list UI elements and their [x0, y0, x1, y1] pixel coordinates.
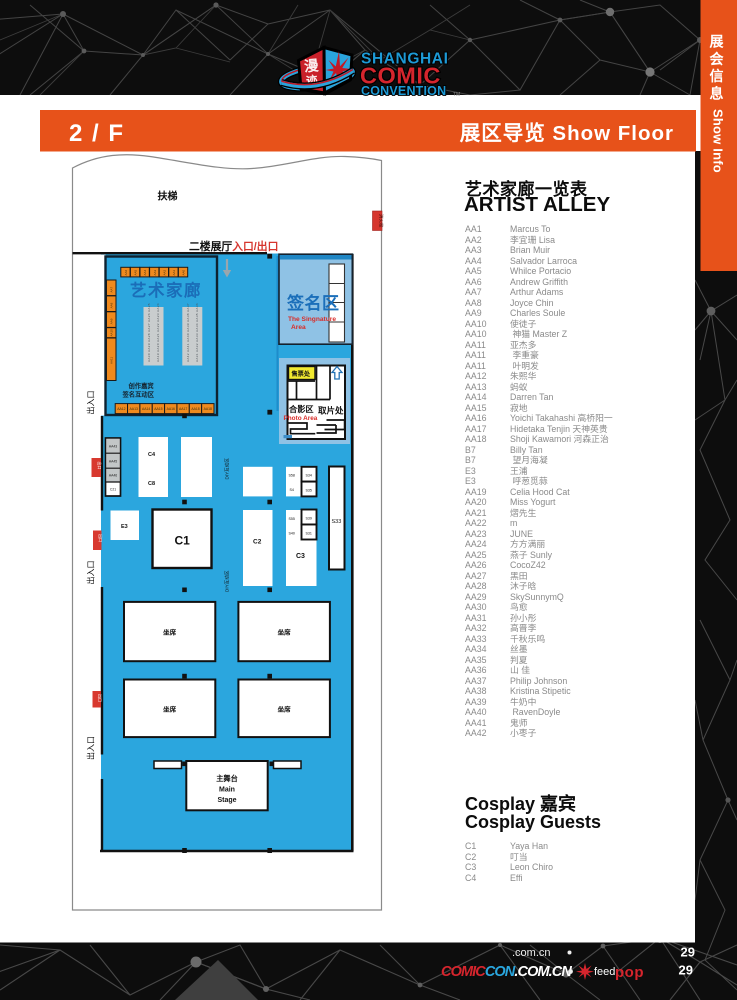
- svg-text:AA15: AA15: [154, 407, 162, 411]
- svg-text:取片处: 取片处: [318, 406, 344, 416]
- svg-text:C8: C8: [148, 481, 155, 487]
- svg-text:出口: 出口: [98, 694, 104, 702]
- svg-text:签名互动区: 签名互动区: [122, 390, 155, 399]
- svg-text:Show Info: Show Info: [711, 109, 726, 173]
- svg-text:29: 29: [681, 945, 695, 960]
- svg-text:售票处: 售票处: [292, 370, 311, 378]
- svg-text:出入口: 出入口: [86, 561, 96, 585]
- svg-text:S4: S4: [290, 488, 294, 492]
- svg-text:AA17: AA17: [179, 407, 187, 411]
- svg-text:息: 息: [710, 85, 724, 101]
- svg-text:AA10: AA10: [110, 329, 114, 337]
- svg-text:消火栓: 消火栓: [378, 214, 385, 228]
- svg-text:TM: TM: [453, 92, 460, 98]
- svg-text:S35: S35: [306, 488, 312, 492]
- svg-text:展: 展: [710, 34, 724, 50]
- svg-text:S39: S39: [306, 517, 312, 521]
- svg-text:AA9: AA9: [110, 318, 114, 324]
- svg-text:坐席: 坐席: [163, 705, 177, 714]
- svg-text:.com.cn: .com.cn: [512, 947, 551, 959]
- svg-text:AA30 AA29 AA28 AA27 AA26 AA25: AA30 AA29 AA28 AA27 AA26 AA25: [147, 303, 151, 362]
- svg-text:AA13: AA13: [130, 407, 138, 411]
- svg-text:合影区: 合影区: [288, 404, 314, 414]
- svg-text:The Singnature: The Singnature: [288, 316, 336, 323]
- svg-text:S33: S33: [332, 519, 342, 525]
- svg-text:AA5: AA5: [134, 269, 138, 275]
- svg-text:AA7: AA7: [110, 286, 114, 292]
- svg-text:AA4: AA4: [143, 269, 147, 275]
- svg-text:艺术家廊: 艺术家廊: [130, 280, 202, 300]
- svg-text:S55: S55: [289, 517, 295, 521]
- svg-text:DIY互动区: DIY互动区: [224, 570, 231, 592]
- svg-text:漫: 漫: [303, 57, 319, 75]
- svg-text:二楼展厅入口/出口: 二楼展厅入口/出口: [189, 239, 278, 253]
- svg-text:AA18: AA18: [204, 407, 212, 411]
- svg-text:Photo Area: Photo Area: [284, 415, 318, 422]
- svg-text:AA1: AA1: [172, 269, 176, 275]
- svg-text:出口: 出口: [97, 462, 103, 470]
- svg-text:展区导览 Show Floor: 展区导览 Show Floor: [460, 121, 674, 145]
- svg-text:S31: S31: [306, 531, 312, 535]
- svg-text:创作嘉宾: 创作嘉宾: [128, 381, 155, 390]
- svg-text:AA18: AA18: [191, 407, 199, 411]
- svg-text:坐席: 坐席: [278, 705, 292, 714]
- svg-text:坐席: 坐席: [278, 628, 292, 637]
- svg-text:C21: C21: [110, 488, 116, 492]
- svg-text:坐席: 坐席: [163, 628, 177, 637]
- svg-text:AA45: AA45: [109, 459, 117, 463]
- svg-text:AA14: AA14: [142, 407, 150, 411]
- svg-text:Area: Area: [291, 324, 306, 331]
- svg-text:AA2: AA2: [162, 269, 166, 275]
- svg-text:AA46: AA46: [109, 474, 117, 478]
- svg-text:C2: C2: [253, 539, 262, 546]
- svg-text:AA11: AA11: [110, 357, 114, 364]
- svg-text:pop: pop: [615, 964, 644, 981]
- svg-text:AA8: AA8: [110, 302, 114, 308]
- svg-text:AA3: AA3: [153, 269, 157, 275]
- svg-text:AA43: AA43: [109, 445, 117, 449]
- svg-text:信: 信: [710, 68, 724, 84]
- svg-text:签名区: 签名区: [286, 293, 340, 313]
- svg-text:Stage: Stage: [217, 797, 236, 804]
- svg-text:AA16: AA16: [167, 407, 175, 411]
- svg-text:AA0: AA0: [182, 269, 186, 275]
- svg-text:AA19 AA20 AA21 AA22 AA23 AA24: AA19 AA20 AA21 AA22 AA23 AA24: [156, 303, 160, 362]
- svg-text:AA31 AA32 AA33 AA34 AA35 AA36: AA31 AA32 AA33 AA34 AA35 AA36: [195, 303, 199, 362]
- svg-text:C3: C3: [296, 553, 305, 560]
- svg-text:AA12: AA12: [117, 407, 125, 411]
- svg-text:C1: C1: [175, 534, 191, 548]
- svg-text:AA6: AA6: [124, 269, 128, 275]
- svg-text:出入口: 出入口: [86, 391, 96, 415]
- svg-text:29: 29: [679, 963, 693, 978]
- svg-text:AA42 AA41 AA40 AA39 AA38 AA37: AA42 AA41 AA40 AA39 AA38 AA37: [186, 303, 190, 362]
- svg-text:Main: Main: [219, 787, 235, 794]
- svg-text:E3: E3: [121, 524, 128, 530]
- svg-text:C4: C4: [148, 452, 156, 458]
- svg-text:S58: S58: [289, 474, 295, 478]
- svg-text:DIY互动区: DIY互动区: [224, 458, 231, 480]
- svg-text:COMICCON.COM.CN: COMICCON.COM.CN: [441, 964, 572, 980]
- svg-text:feed: feed: [594, 966, 615, 978]
- svg-text:出口: 出口: [98, 534, 104, 542]
- svg-text:CONVENTION: CONVENTION: [361, 84, 446, 98]
- svg-text:S40: S40: [289, 532, 295, 536]
- svg-text:2 / F: 2 / F: [69, 120, 125, 147]
- svg-text:扶梯: 扶梯: [158, 190, 178, 203]
- svg-text:会: 会: [710, 51, 725, 67]
- svg-text:出入口: 出入口: [86, 736, 96, 760]
- svg-text:主舞台: 主舞台: [216, 774, 238, 783]
- svg-text:S34: S34: [306, 474, 312, 478]
